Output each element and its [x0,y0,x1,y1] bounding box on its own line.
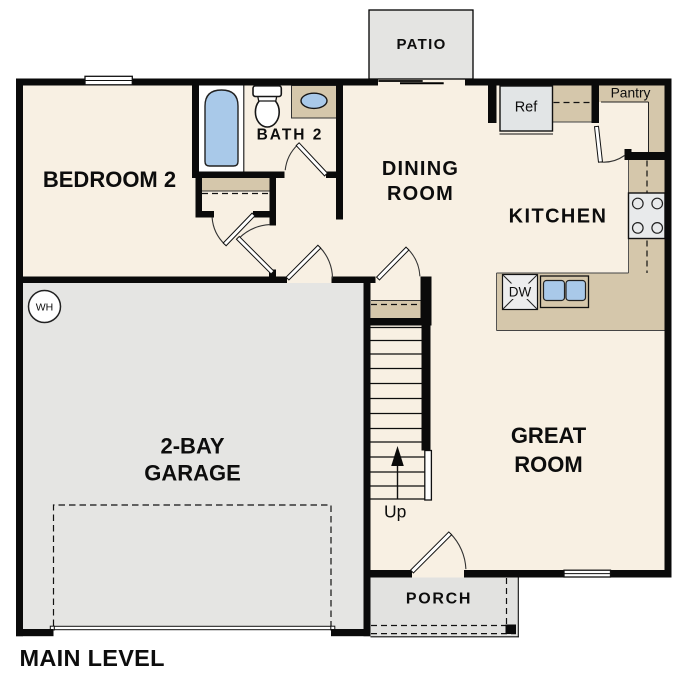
svg-text:GREAT: GREAT [511,423,587,448]
svg-text:MAIN LEVEL: MAIN LEVEL [20,645,165,671]
svg-text:Ref: Ref [515,100,539,116]
svg-text:Pantry: Pantry [611,85,651,100]
svg-text:DINING: DINING [382,158,459,180]
svg-text:KITCHEN: KITCHEN [509,206,608,228]
svg-text:Up: Up [384,502,406,522]
svg-text:GARAGE: GARAGE [144,461,241,486]
svg-text:BEDROOM 2: BEDROOM 2 [43,167,176,192]
svg-text:BATH 2: BATH 2 [257,126,324,143]
svg-text:PATIO: PATIO [396,36,446,53]
svg-text:PORCH: PORCH [406,591,472,608]
svg-text:WH: WH [36,302,54,314]
svg-text:ROOM: ROOM [387,183,454,205]
svg-text:ROOM: ROOM [514,452,582,477]
svg-text:2-BAY: 2-BAY [161,434,225,459]
svg-text:DW: DW [509,285,532,300]
